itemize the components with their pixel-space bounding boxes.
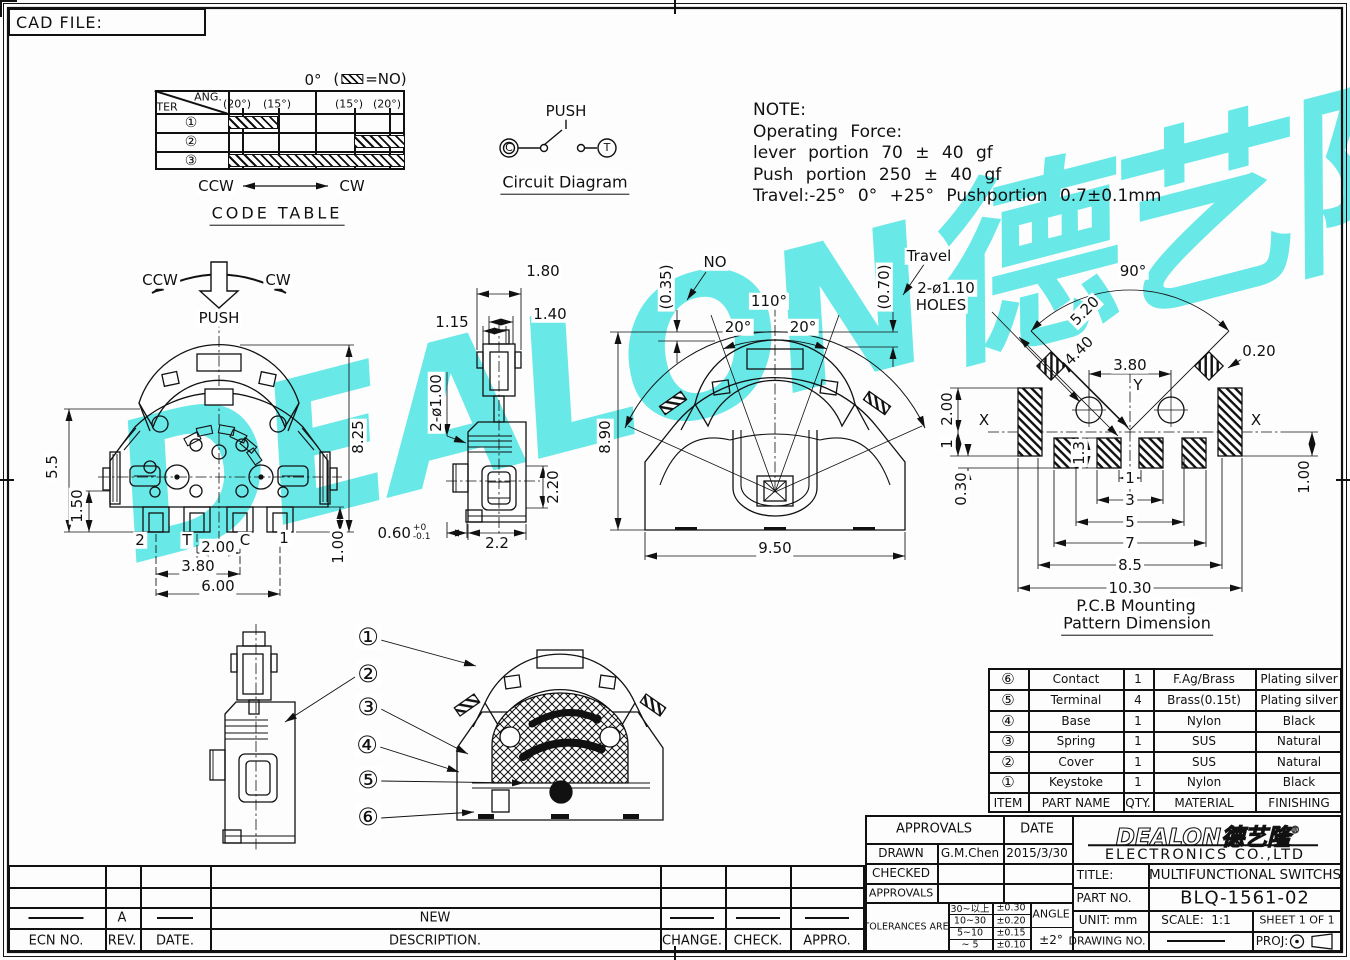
dim-label: 2-ø1.10 xyxy=(915,280,977,297)
tol-range: 30~以上 xyxy=(950,901,989,915)
sheet-label: SHEET xyxy=(1259,914,1295,927)
tol-value: ±0.15 xyxy=(996,928,1025,939)
logo-underline xyxy=(1088,844,1318,846)
appro-dash xyxy=(805,917,849,919)
item-balloon: ⑥ xyxy=(1001,670,1014,688)
parts-table-cell: 4 xyxy=(1134,693,1142,707)
sheet-cell: SHEET 1 OF 1 xyxy=(1259,914,1334,927)
tol-value: ±0.10 xyxy=(996,940,1025,951)
dim-label: NO xyxy=(701,254,728,271)
parts-table-cell: Nylon xyxy=(1187,775,1221,789)
parts-table-header: FINISHING xyxy=(1268,796,1329,810)
dim-label: 1 xyxy=(939,437,956,451)
dim-label: 0.30 xyxy=(953,470,970,507)
balloon-number: ⑥ xyxy=(355,804,381,830)
dim-label: C xyxy=(503,142,515,154)
dim-label: 110° xyxy=(749,293,789,310)
dim-label: 7 xyxy=(1123,535,1137,552)
ang-label: ANG. xyxy=(194,91,222,104)
dim-label: 90° xyxy=(1118,263,1149,280)
dim-label: T xyxy=(180,532,193,549)
description-value: NEW xyxy=(420,911,451,926)
dim-label: 5.5 xyxy=(44,453,61,481)
dim-label: 2.00 xyxy=(199,539,236,556)
dim-label: 2.00 xyxy=(939,390,956,427)
item-balloon: ⑤ xyxy=(1001,691,1014,709)
angle-col-header: (15°) xyxy=(263,98,291,111)
parts-table-cell: F.Ag/Brass xyxy=(1173,672,1235,686)
check-header: CHECK. xyxy=(734,934,783,949)
dim-label: C xyxy=(238,532,252,549)
date-header: DATE xyxy=(1020,822,1054,837)
parts-table-line xyxy=(988,751,1342,753)
rev-line xyxy=(8,928,865,930)
note-line: Travel:-25° 0° +25° Pushportion 0.7±0.1m… xyxy=(753,186,1161,208)
cad-file-label: CAD FILE: xyxy=(16,13,103,32)
tol-value: ±0.30 xyxy=(996,903,1025,914)
tol-range: ~ 5 xyxy=(961,940,978,951)
angle-col-header: (15°) xyxy=(335,98,363,111)
tol-range: 10~30 xyxy=(954,916,986,927)
dim-label: Y xyxy=(1131,377,1144,394)
note-block: NOTE: Operating Force: lever portion 70 … xyxy=(753,100,1161,208)
balloon-number: ③ xyxy=(355,694,381,720)
tol-stack: +0 -0.1 xyxy=(413,524,431,542)
company-name: ELECTRONICS CO.,LTD xyxy=(1105,847,1305,863)
dim-label: CODE TABLE xyxy=(210,205,345,226)
angle-label: ANGLE xyxy=(1032,908,1069,921)
item-balloon: ① xyxy=(1001,773,1014,791)
scale-value: 1:1 xyxy=(1211,913,1230,927)
projection-symbol-icon xyxy=(1288,933,1338,950)
part-number: BLQ-1561-02 xyxy=(1180,888,1310,909)
ecn-no-header: ECN NO. xyxy=(29,934,84,949)
balloon-number: ⑤ xyxy=(355,767,381,793)
dim-label: PUSH xyxy=(544,103,589,120)
tol-lower: -0.1 xyxy=(413,533,431,542)
parts-table-cell: SUS xyxy=(1192,734,1216,748)
parts-table-cell: Spring xyxy=(1057,734,1096,748)
hatch-legend: (=NO) xyxy=(333,70,406,88)
angle-col-header: (20°) xyxy=(223,98,251,111)
rev-header: REV. xyxy=(108,934,137,949)
drawn-label: DRAWN xyxy=(878,846,924,860)
dim-label: 8.90 xyxy=(597,418,614,455)
parts-table-cell: Keystoke xyxy=(1049,775,1103,789)
circuit-diagram xyxy=(500,119,616,157)
rev-value: A xyxy=(118,911,127,926)
on-range-bar-1 xyxy=(228,116,278,129)
tb-line xyxy=(865,883,1072,885)
dim-label: 3.80 xyxy=(179,558,216,575)
dim-label: 20° xyxy=(788,319,819,336)
drawing-sheet: DEALON德艺隆® xyxy=(0,0,1350,960)
parts-table-cell: Plating silver xyxy=(1260,693,1337,707)
dim-label: 1.00 xyxy=(1296,458,1313,495)
tb-line xyxy=(1072,815,1074,952)
unit-value: mm xyxy=(1114,913,1137,927)
note-line: NOTE: xyxy=(753,100,1161,122)
parts-table-line xyxy=(988,731,1342,733)
parts-table-cell: Natural xyxy=(1277,734,1321,748)
scale-cell: SCALE: 1:1 xyxy=(1161,913,1230,927)
ter-label: TER xyxy=(156,101,177,114)
parts-table-cell: 1 xyxy=(1134,755,1142,769)
dim-label: 10.30 xyxy=(1107,580,1154,597)
dim-label: 1.3 xyxy=(1071,439,1088,467)
change-dash xyxy=(670,917,714,919)
parts-table-cell: 1 xyxy=(1134,672,1142,686)
dim-label: PUSH xyxy=(197,310,242,327)
drawing-title: MULTIFUNCTIONAL SWITCHS xyxy=(1149,867,1341,883)
parts-table-cell: Nylon xyxy=(1187,714,1221,728)
dim-label: 8.5 xyxy=(1116,557,1144,574)
parts-table-header: MATERIAL xyxy=(1174,796,1233,810)
rev-line xyxy=(725,865,727,952)
rev-line xyxy=(8,907,865,909)
drawn-by: G.M.Chen xyxy=(941,846,999,860)
rev-line xyxy=(210,865,212,952)
dim-label: 2.2 xyxy=(483,535,511,552)
scale-label: SCALE: xyxy=(1161,913,1204,927)
dim-label: CCW xyxy=(140,272,180,289)
angle-tolerance: ±2° xyxy=(1039,933,1063,947)
dim-label: 1.50 xyxy=(69,487,86,524)
dim-label: 1.15 xyxy=(433,314,470,331)
parts-table-cell: Terminal xyxy=(1051,693,1102,707)
tb-line xyxy=(1003,815,1005,902)
rev-line xyxy=(105,865,107,952)
dim-label: 0.20 xyxy=(1240,343,1277,360)
rev-line xyxy=(8,887,865,889)
approvals-label: APPROVALS xyxy=(869,887,933,900)
drawn-date: 2015/3/30 xyxy=(1006,846,1068,860)
item-balloon: ③ xyxy=(1001,732,1014,750)
sheet-value: 1 OF 1 xyxy=(1299,914,1335,927)
dim-label: 1 xyxy=(277,530,291,547)
on-range-bar-2 xyxy=(354,135,405,148)
legend-close: =NO) xyxy=(365,70,406,88)
tb-line xyxy=(937,843,939,902)
zero-degree-label: 0° xyxy=(304,71,321,89)
dim-label: 8.25 xyxy=(350,418,367,455)
angle-col-header: (20°) xyxy=(373,98,401,111)
item-balloon: ④ xyxy=(1001,712,1014,730)
dim-label: (0.70) xyxy=(876,262,893,311)
parts-table-header: ITEM xyxy=(994,796,1023,810)
dim-label: 1.40 xyxy=(531,306,568,323)
note-line: Operating Force: xyxy=(753,122,1161,144)
projection-label: PROJ: xyxy=(1256,934,1289,948)
tb-line xyxy=(1252,910,1254,952)
parts-table-cell: Brass(0.15t) xyxy=(1167,693,1241,707)
dim-label: 3 xyxy=(1123,492,1137,509)
title-label: TITLE: xyxy=(1077,868,1114,882)
item-balloon: ② xyxy=(1001,753,1014,771)
dim-label: X xyxy=(977,412,991,429)
appro-header: APPRO. xyxy=(803,934,850,949)
parts-table-cell: Black xyxy=(1283,714,1315,728)
parts-table-cell: 1 xyxy=(1134,775,1142,789)
tol-value: ±0.20 xyxy=(996,916,1025,927)
dim-label: (0.35) xyxy=(658,262,675,311)
note-line: lever portion 70 ± 40 gf xyxy=(753,143,1161,165)
parts-table-cell: Cover xyxy=(1058,755,1093,769)
parts-table-header: QTY. xyxy=(1125,796,1151,810)
cad-file-box: CAD FILE: xyxy=(8,8,206,36)
date-header: DATE. xyxy=(156,934,194,949)
dim-label: CW xyxy=(337,178,366,195)
tolerance-dim: 0.60 +0 -0.1 xyxy=(376,524,433,542)
dim-label: 2.20 xyxy=(545,468,562,505)
dim-label: 9.50 xyxy=(756,540,793,557)
balloon-number: ② xyxy=(355,661,381,687)
tb-line xyxy=(865,843,1072,845)
dim-label: 6.00 xyxy=(199,578,236,595)
logo-registered-icon: ® xyxy=(1290,825,1300,836)
tol-value: 0.60 xyxy=(378,525,411,542)
dim-label: Circuit Diagram xyxy=(500,174,629,195)
note-line: Push portion 250 ± 40 gf xyxy=(753,165,1161,187)
dim-label: X xyxy=(1249,412,1263,429)
change-header: CHANGE. xyxy=(662,934,722,949)
dim-label: HOLES xyxy=(914,297,968,314)
dim-label: 20° xyxy=(723,319,754,336)
terminal-row-1: ① xyxy=(185,115,198,131)
tb-line xyxy=(1072,910,1342,912)
dim-label: 2 xyxy=(133,532,147,549)
parts-table-line xyxy=(988,710,1342,712)
terminal-row-2: ② xyxy=(185,134,198,150)
parts-table-cell: Plating silver xyxy=(1260,672,1337,686)
parts-table-header: PART NAME xyxy=(1042,796,1110,810)
section-view xyxy=(454,650,665,820)
parts-table-cell: Base xyxy=(1061,714,1090,728)
parts-table-cell: Black xyxy=(1283,775,1315,789)
unit-label: UNIT: xyxy=(1079,913,1110,927)
parts-table-cell: Contact xyxy=(1053,672,1100,686)
on-range-bar-3 xyxy=(228,154,405,167)
dim-label: 1 xyxy=(1123,470,1137,487)
dim-label: 1.80 xyxy=(524,263,561,280)
dim-label: P.C.B Mounting xyxy=(1074,597,1197,615)
dim-label: 5 xyxy=(1123,514,1137,531)
parts-table-line xyxy=(988,772,1342,774)
drawing-no-dash xyxy=(1167,940,1225,942)
dim-label: CW xyxy=(263,272,292,289)
tolerances-label: TOLERANCES ARE xyxy=(863,922,948,933)
dim-label: 3.80 xyxy=(1111,357,1148,374)
parts-table-cell: 1 xyxy=(1134,714,1142,728)
parts-table-cell: 1 xyxy=(1134,734,1142,748)
legend-open: ( xyxy=(333,70,339,88)
approvals-header: APPROVALS xyxy=(896,822,972,837)
dim-label: 2-ø1.00 xyxy=(428,372,445,434)
dim-label: Travel xyxy=(905,248,954,265)
parts-table-line xyxy=(988,792,1342,794)
dim-label: Pattern Dimension xyxy=(1061,615,1213,636)
parts-table-line xyxy=(988,689,1342,691)
date-dash xyxy=(157,917,193,919)
drawing-no-label: DRAWING NO. xyxy=(1069,935,1146,948)
part-no-label: PART NO. xyxy=(1076,891,1131,905)
balloon-leaders xyxy=(285,640,524,818)
exploded-side-view xyxy=(210,624,295,852)
balloon-number: ④ xyxy=(354,732,380,758)
dim-label: CCW xyxy=(196,178,236,195)
check-dash xyxy=(736,917,780,919)
rev-line xyxy=(140,865,142,952)
ecn-dash xyxy=(29,917,84,919)
balloon-number: ① xyxy=(355,624,381,650)
checked-label: CHECKED xyxy=(872,866,930,880)
dim-label: T xyxy=(602,142,613,154)
terminal-row-3: ③ xyxy=(185,153,198,169)
hatch-swatch-icon xyxy=(341,74,363,84)
parts-table-cell: Natural xyxy=(1277,755,1321,769)
company-logo: DEALON德艺隆® xyxy=(1082,818,1334,844)
tol-range: 5~10 xyxy=(957,928,983,939)
parts-table-cell: SUS xyxy=(1192,755,1216,769)
description-header: DESCRIPTION. xyxy=(389,934,481,949)
unit-cell: UNIT: mm xyxy=(1079,913,1138,927)
dim-label: 1.00 xyxy=(330,528,347,565)
rev-line xyxy=(790,865,792,952)
